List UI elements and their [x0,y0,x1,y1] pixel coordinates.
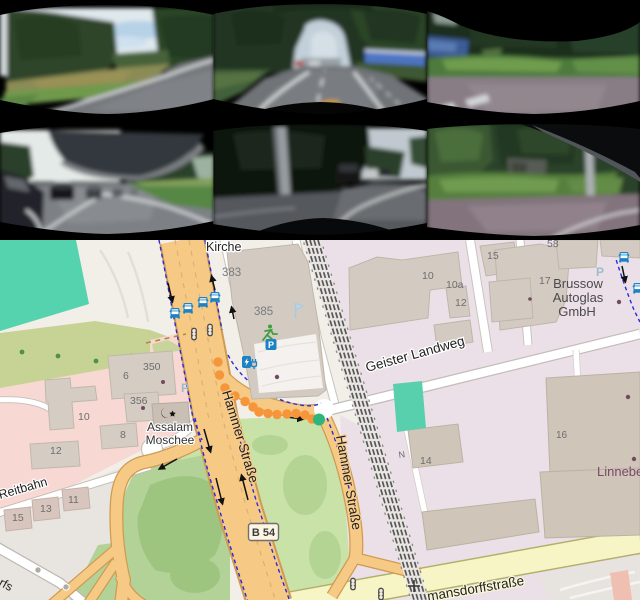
svg-text:14: 14 [420,455,432,467]
svg-text:58: 58 [547,240,559,250]
svg-text:Autoglas: Autoglas [553,290,604,305]
svg-text:15: 15 [12,512,24,524]
svg-text:10: 10 [78,411,90,423]
svg-text:383: 383 [222,267,241,279]
svg-text:385: 385 [254,306,273,318]
svg-text:13: 13 [40,503,52,515]
svg-text:12: 12 [50,445,62,457]
svg-text:10a: 10a [446,279,464,291]
svg-text:12: 12 [455,297,467,309]
svg-text:Linnebe: Linnebe [597,464,640,479]
svg-text:N: N [398,449,406,460]
svg-text:Brussow: Brussow [553,276,603,291]
svg-text:P: P [181,381,189,395]
svg-text:356: 356 [130,395,148,407]
svg-text:10: 10 [422,270,434,282]
svg-text:Kirche: Kirche [206,240,241,254]
svg-text:Moschee: Moschee [146,433,195,447]
svg-text:11: 11 [68,494,79,506]
svg-text:350: 350 [143,361,161,373]
svg-text:GmbH: GmbH [558,304,596,319]
svg-text:15: 15 [487,250,499,262]
svg-text:8: 8 [120,429,126,441]
svg-text:16: 16 [556,430,568,441]
svg-text:B 54: B 54 [252,527,276,539]
svg-text:17: 17 [539,275,551,287]
svg-text:Assalam: Assalam [147,420,193,434]
svg-text:6: 6 [123,370,129,382]
svg-text:P: P [268,340,274,350]
